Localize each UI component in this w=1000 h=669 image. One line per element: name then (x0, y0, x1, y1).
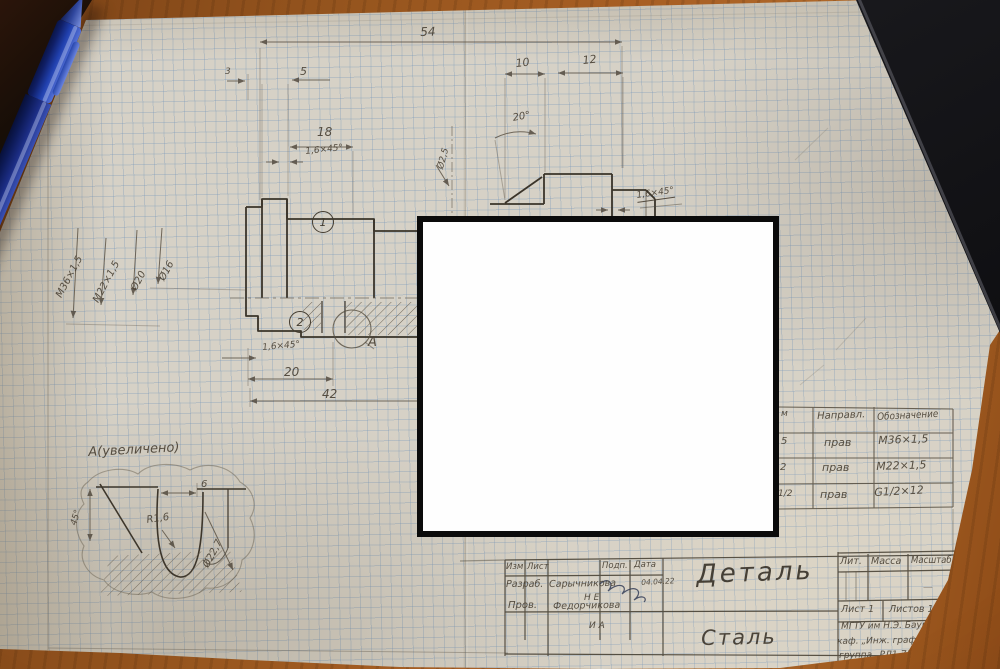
thread-table-r3-direction: прав (820, 489, 847, 500)
thread-table-fragment-0: м (781, 410, 788, 419)
titleblock-scale-value: — (923, 583, 933, 593)
dim-step-5: 5 (300, 66, 307, 77)
thread-table-header-direction: Направл. (817, 410, 865, 422)
dim-total-length: 54 (420, 25, 436, 38)
thread-table-r1-direction: прав (824, 437, 851, 448)
section-hatching (303, 302, 417, 335)
titleblock-col-podp: Подп. (602, 562, 628, 571)
dim-len-10: 10 (515, 57, 530, 69)
dim-len-42: 42 (322, 388, 337, 400)
thread-table-r3-designation: G1/2×12 (874, 484, 924, 498)
thread-table-fragment-3: 1/2 (778, 490, 792, 499)
titleblock-part-name: Деталь (696, 558, 814, 588)
detail-callout-letter: А (368, 336, 377, 349)
faint-pencil-scratches (795, 128, 866, 385)
titleblock-col-data: Дата (634, 561, 656, 570)
titleblock-prov-label: Пров. (508, 601, 537, 611)
thread-table-r1-designation: М36×1,5 (878, 433, 929, 446)
detail-view-hatching (100, 550, 242, 596)
titleblock-sheets: Листов 1 (889, 605, 934, 615)
dim-len-18: 18 (317, 126, 332, 138)
photo-of-hand-drawn-engineering-drawing: 54 3 5 10 12 18 1,6×45° 20° Ø2,5 1,6×45°… (0, 0, 1000, 669)
thread-table-fragment-2: 2 (780, 463, 786, 473)
titleblock-razrab-name: Сарычникова (549, 579, 616, 590)
titleblock-sheet: Лист 1 (841, 605, 874, 615)
titleblock-mass-label: Масса (871, 557, 901, 567)
titleblock-col-list: Лист (527, 563, 549, 572)
titleblock-prov-name: Федорчикова (553, 601, 620, 612)
titleblock-prov-initials: И А (589, 622, 605, 631)
titleblock-lit-label: Лит. (840, 557, 862, 567)
dim-len-12: 12 (582, 54, 597, 66)
titleblock-date: 04.04.22 (641, 577, 675, 586)
dim-len-20: 20 (284, 366, 299, 378)
titleblock-material: Сталь (701, 627, 777, 649)
thread-table-r2-direction: прав (822, 462, 849, 473)
titleblock-scale-label: Масштаб (911, 556, 952, 566)
dim-left-step: 3 (225, 68, 231, 77)
position-callout-1: 1 (312, 211, 334, 233)
position-callout-2: 2 (289, 311, 311, 333)
thread-table-r2-designation: М22×1,5 (876, 459, 927, 472)
titleblock-razrab-label: Разраб. (506, 580, 543, 590)
thread-table-grid (779, 407, 953, 552)
titleblock-col-izm: Изм (506, 563, 523, 572)
detail-dim-width: 6 (201, 480, 207, 490)
occlusion-box (417, 216, 779, 537)
thread-table-fragment-1: 5 (781, 437, 787, 447)
